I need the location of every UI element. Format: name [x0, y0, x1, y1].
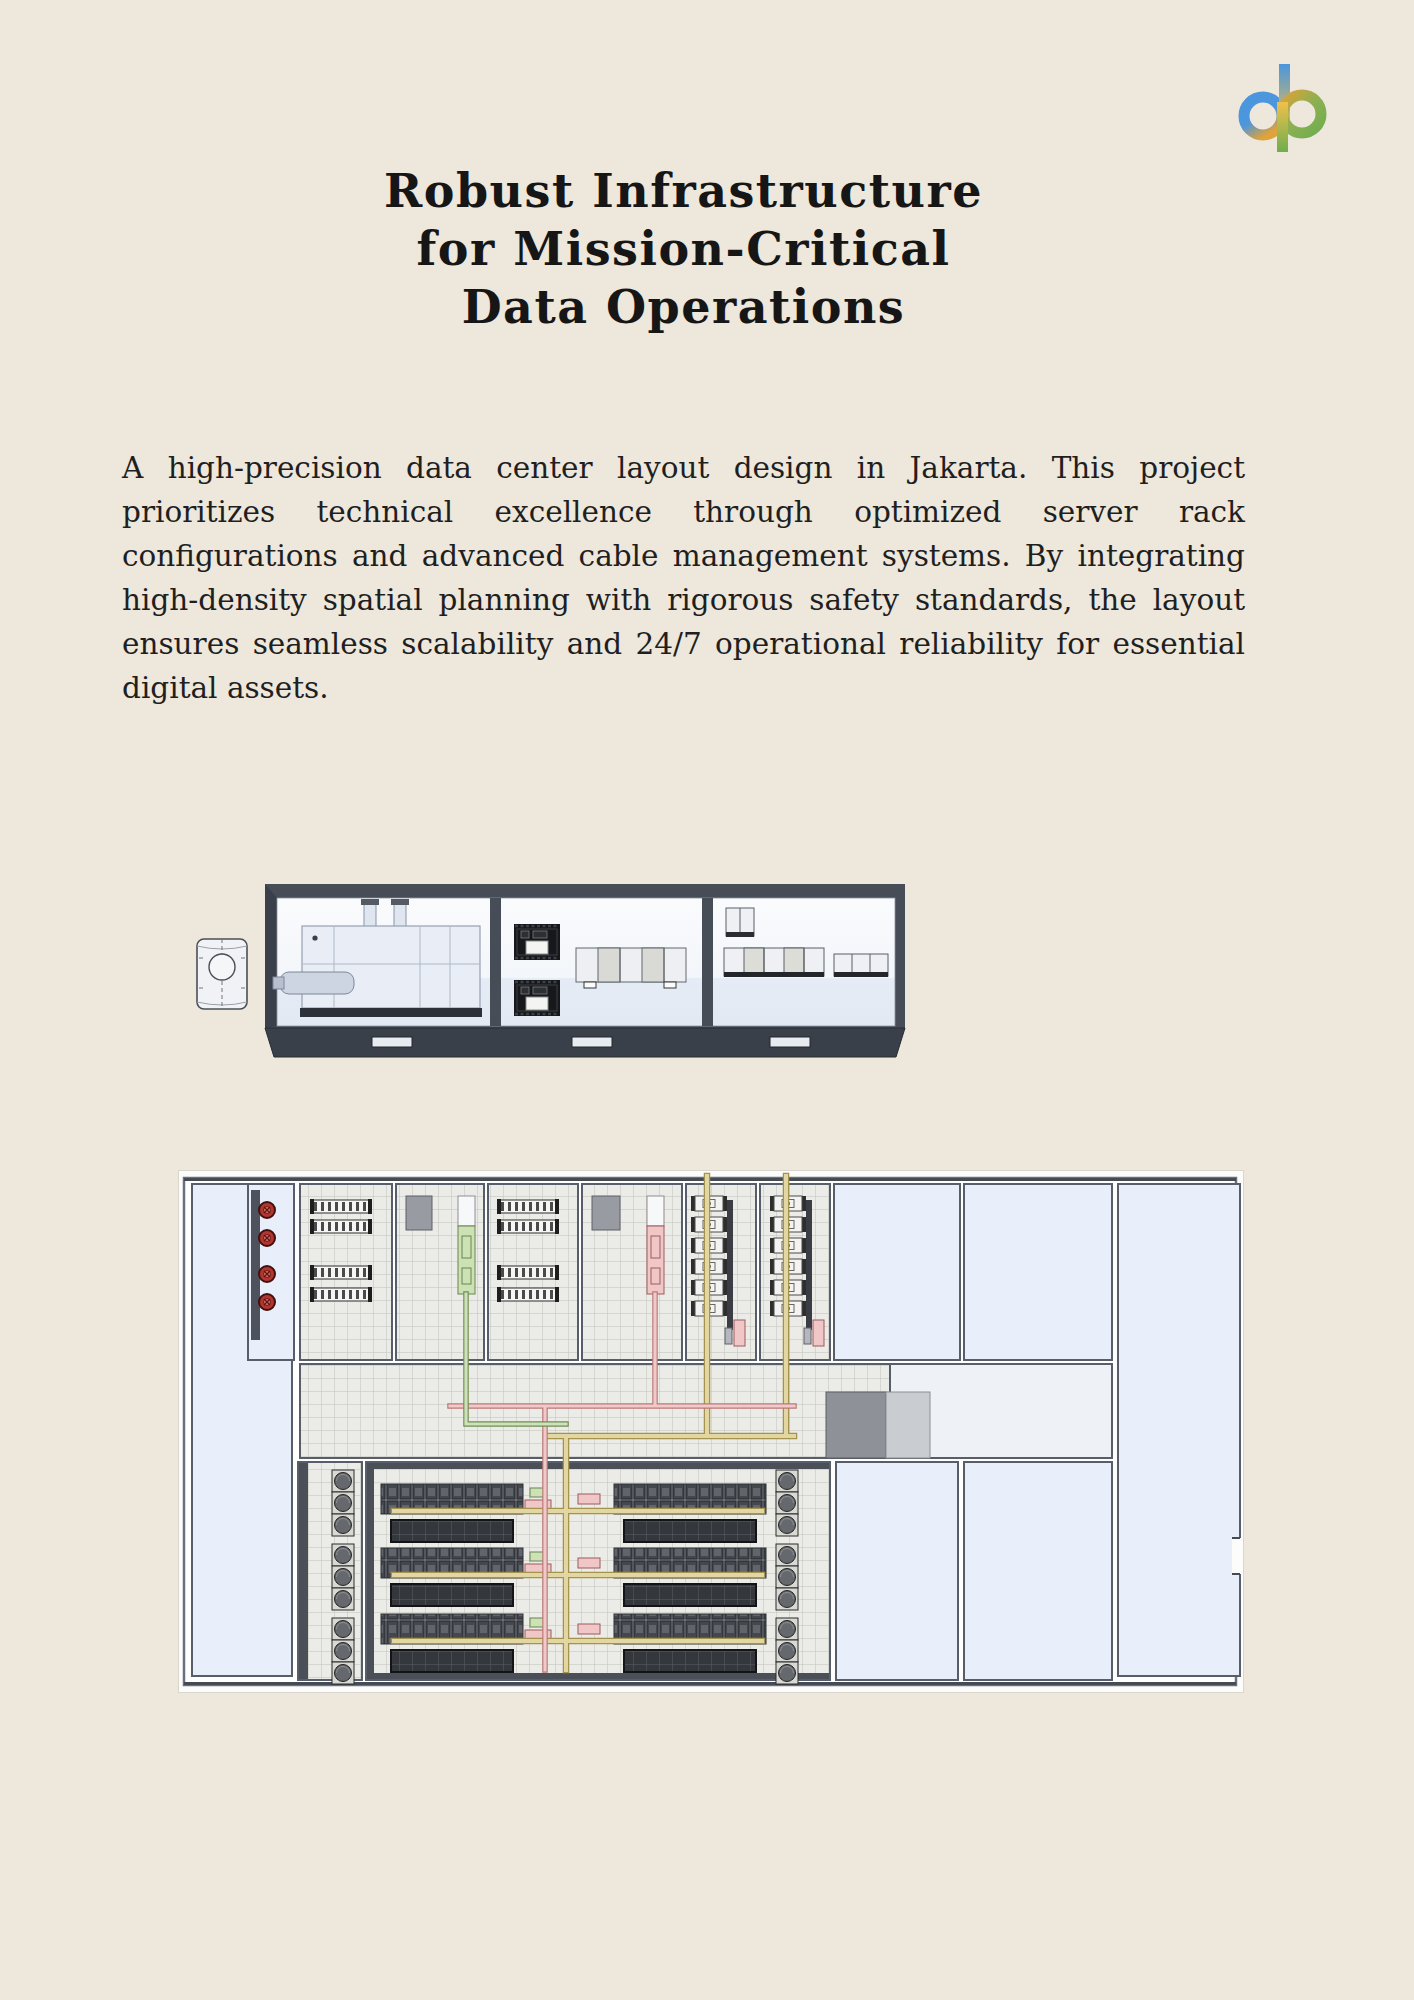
portfolio-page: Robust Infrastructure for Mission-Critic…	[0, 0, 1414, 2000]
fan-wall-left	[298, 1462, 362, 1684]
fire-valve-room	[248, 1184, 294, 1360]
room-right-tall	[1118, 1184, 1242, 1676]
modular-container-elevation-drawing	[182, 868, 912, 1063]
project-description: A high-precision data center layout desi…	[122, 446, 1245, 710]
fuel-tank-cylinder	[197, 939, 247, 1009]
dp-logo	[1232, 58, 1334, 156]
p-glyph	[1277, 95, 1321, 152]
switchgear-room-2	[760, 1184, 830, 1360]
room-empty-bottom-2	[964, 1462, 1112, 1680]
ups-room-pink	[582, 1184, 682, 1360]
ups-room-green	[396, 1184, 484, 1360]
fan-wall-right	[776, 1470, 798, 1684]
room-empty-bottom-1	[836, 1462, 958, 1680]
room-empty-top-1	[834, 1184, 960, 1360]
battery-room-2	[488, 1184, 578, 1360]
room-empty-top-2	[964, 1184, 1112, 1360]
title-line-1: Robust Infrastructure	[122, 162, 1245, 220]
corridor-gray-box	[826, 1392, 886, 1458]
switchgear-room-1	[686, 1184, 756, 1360]
page-title: Robust Infrastructure for Mission-Critic…	[122, 162, 1245, 336]
data-center-floor-plan-drawing	[178, 1170, 1244, 1693]
title-line-2: for Mission-Critical	[122, 220, 1245, 278]
battery-room-1	[300, 1184, 392, 1360]
title-line-3: Data Operations	[122, 278, 1245, 336]
cabinet-row-mid	[576, 948, 686, 988]
